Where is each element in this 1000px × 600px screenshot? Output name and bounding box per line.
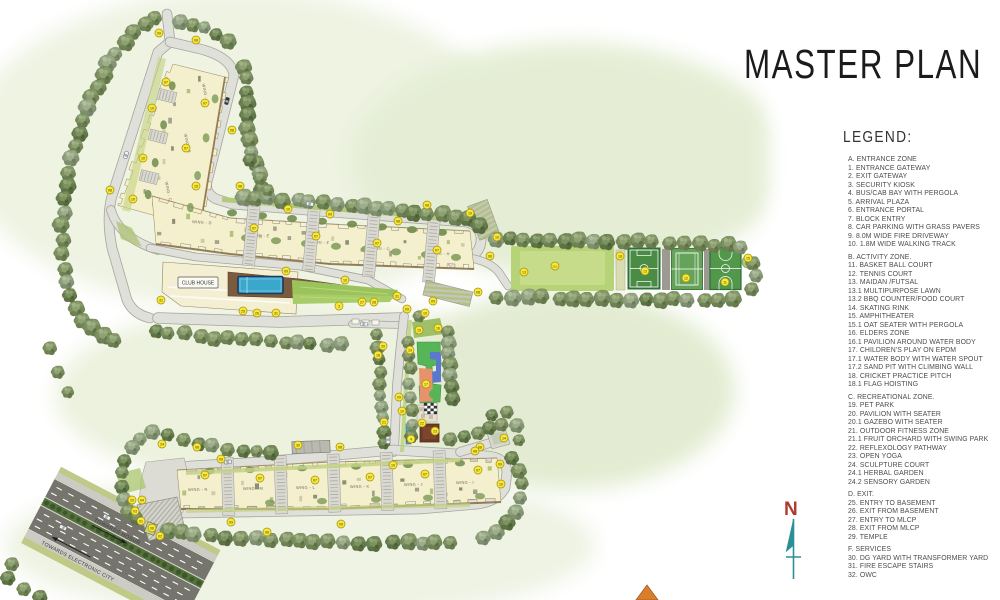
- svg-text:15: 15: [194, 184, 198, 188]
- svg-text:10: 10: [131, 197, 135, 201]
- svg-text:N: N: [784, 499, 798, 520]
- svg-text:07: 07: [203, 473, 207, 477]
- svg-text:30: 30: [296, 443, 300, 447]
- svg-text:07: 07: [184, 146, 188, 150]
- svg-text:08: 08: [473, 449, 477, 453]
- svg-text:16: 16: [436, 326, 440, 330]
- svg-text:10: 10: [150, 106, 154, 110]
- svg-text:31: 31: [159, 298, 163, 302]
- svg-text:28: 28: [372, 300, 376, 304]
- svg-text:12: 12: [684, 276, 688, 280]
- svg-text:11: 11: [723, 280, 727, 284]
- svg-text:04: 04: [140, 498, 144, 502]
- svg-text:3: 3: [338, 304, 340, 308]
- svg-text:07: 07: [164, 80, 168, 84]
- svg-text:09: 09: [339, 522, 343, 526]
- svg-text:03: 03: [133, 509, 137, 513]
- svg-text:13: 13: [522, 270, 526, 274]
- svg-text:13.1: 13.1: [552, 264, 558, 268]
- svg-text:18: 18: [376, 353, 380, 357]
- svg-text:10: 10: [391, 463, 395, 467]
- svg-text:4: 4: [410, 437, 412, 441]
- svg-text:08: 08: [396, 219, 400, 223]
- svg-text:07: 07: [423, 472, 427, 476]
- svg-text:25: 25: [241, 309, 245, 313]
- svg-text:06: 06: [150, 526, 154, 530]
- svg-text:WING - N: WING - N: [188, 487, 208, 492]
- svg-text:07: 07: [368, 475, 372, 479]
- svg-text:23: 23: [433, 429, 437, 433]
- svg-text:08: 08: [230, 128, 234, 132]
- svg-text:13: 13: [643, 269, 647, 273]
- svg-text:09: 09: [157, 31, 161, 35]
- svg-text:08: 08: [425, 203, 429, 207]
- svg-text:07: 07: [476, 468, 480, 472]
- svg-text:29: 29: [130, 498, 134, 502]
- svg-text:07: 07: [314, 234, 318, 238]
- svg-text:18: 18: [618, 254, 622, 258]
- svg-text:27: 27: [360, 300, 364, 304]
- svg-text:08: 08: [238, 184, 242, 188]
- svg-text:15: 15: [746, 256, 750, 260]
- svg-text:WING - I: WING - I: [456, 480, 474, 485]
- svg-text:09: 09: [219, 457, 223, 461]
- svg-text:31: 31: [395, 294, 399, 298]
- svg-text:09: 09: [498, 462, 502, 466]
- svg-text:10: 10: [423, 311, 427, 315]
- svg-text:WING - J: WING - J: [404, 482, 423, 487]
- svg-text:07: 07: [252, 226, 256, 230]
- svg-text:20: 20: [381, 344, 385, 348]
- svg-text:10: 10: [400, 409, 404, 413]
- svg-text:07: 07: [375, 241, 379, 245]
- svg-text:07: 07: [435, 248, 439, 252]
- svg-text:26: 26: [255, 311, 259, 315]
- svg-text:10: 10: [141, 156, 145, 160]
- svg-text:08: 08: [476, 290, 480, 294]
- svg-text:31: 31: [274, 311, 278, 315]
- svg-text:CLUB HOUSE: CLUB HOUSE: [182, 281, 215, 287]
- svg-text:08: 08: [195, 445, 199, 449]
- svg-text:10: 10: [495, 235, 499, 239]
- svg-text:09: 09: [397, 395, 401, 399]
- svg-text:10: 10: [343, 278, 347, 282]
- svg-text:08: 08: [108, 188, 112, 192]
- svg-text:21: 21: [382, 420, 386, 424]
- svg-text:19: 19: [408, 348, 412, 352]
- svg-text:08: 08: [194, 38, 198, 42]
- svg-text:24: 24: [160, 442, 164, 446]
- svg-text:22: 22: [420, 421, 424, 425]
- svg-text:08: 08: [338, 445, 342, 449]
- svg-text:07: 07: [258, 476, 262, 480]
- svg-text:10: 10: [286, 207, 290, 211]
- svg-text:10: 10: [468, 211, 472, 215]
- svg-text:02: 02: [158, 534, 162, 538]
- svg-text:07: 07: [313, 478, 317, 482]
- svg-text:05: 05: [431, 299, 435, 303]
- svg-text:15: 15: [417, 328, 421, 332]
- svg-text:08: 08: [265, 530, 269, 534]
- svg-text:WING - L: WING - L: [296, 485, 316, 490]
- svg-text:09: 09: [328, 212, 332, 216]
- svg-text:01: 01: [139, 519, 143, 523]
- svg-text:09: 09: [229, 520, 233, 524]
- svg-text:06: 06: [488, 254, 492, 258]
- svg-text:17: 17: [424, 382, 428, 386]
- svg-text:09: 09: [284, 269, 288, 273]
- svg-text:10: 10: [499, 482, 503, 486]
- svg-text:WING - K: WING - K: [350, 484, 370, 489]
- svg-text:14: 14: [502, 436, 506, 440]
- svg-text:WING - M: WING - M: [243, 486, 263, 491]
- svg-text:07: 07: [203, 101, 207, 105]
- svg-text:09: 09: [405, 307, 409, 311]
